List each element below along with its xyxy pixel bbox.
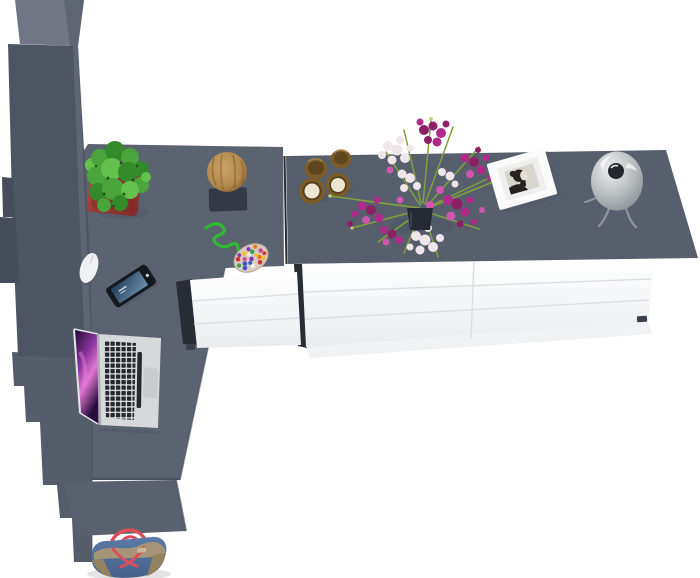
product-render-stage <box>0 0 700 578</box>
hourglass-sand <box>331 178 345 192</box>
log-stool <box>207 152 247 212</box>
hourglass-sand <box>305 184 320 199</box>
chair-seat <box>64 480 186 536</box>
corner-drawer-fronts[interactable] <box>190 272 301 348</box>
lamp-dome <box>591 152 643 211</box>
corner-unit-foot <box>186 344 195 350</box>
tall-cabinet <box>0 0 92 358</box>
cabinet-door-2[interactable] <box>2 177 15 217</box>
laptop-trackpad <box>143 367 158 399</box>
laptop-keyboard <box>104 341 136 420</box>
chair[interactable] <box>64 480 186 536</box>
scene-render <box>0 0 700 578</box>
tote-bag[interactable] <box>87 530 171 578</box>
sideboard-foot <box>637 316 647 323</box>
desk-sideboard-seam <box>285 156 287 264</box>
cabinet-door-1[interactable] <box>0 217 19 283</box>
